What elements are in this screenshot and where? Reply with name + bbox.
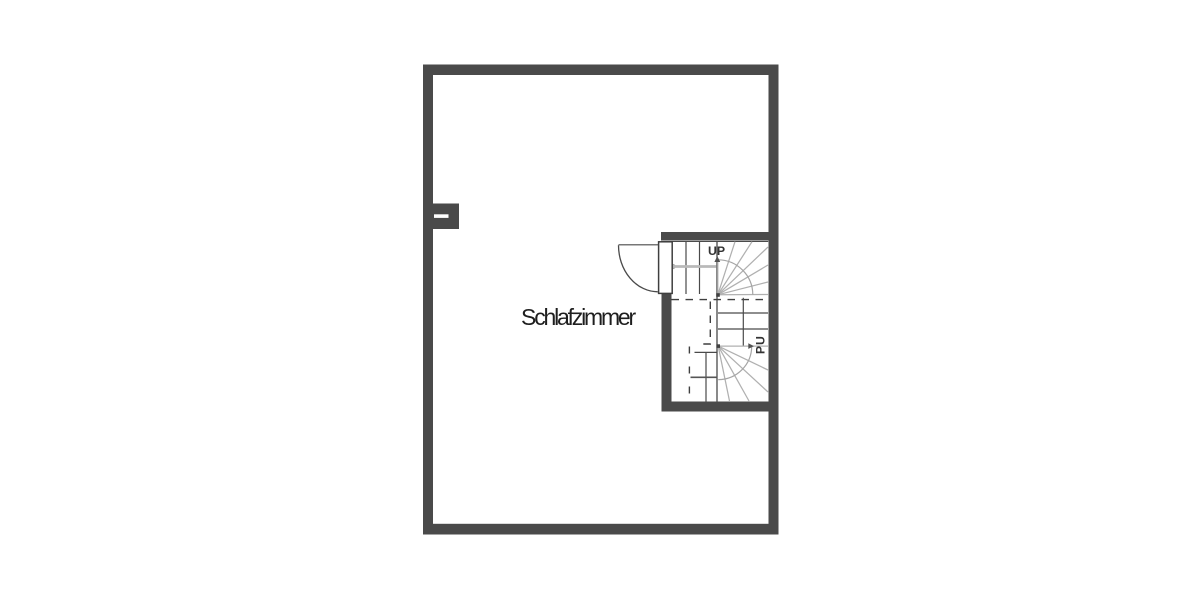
svg-text:UP: UP bbox=[708, 244, 725, 258]
svg-text:Schlafzimmer: Schlafzimmer bbox=[521, 304, 636, 330]
svg-text:U: U bbox=[754, 336, 768, 345]
svg-text:P: P bbox=[754, 346, 768, 354]
